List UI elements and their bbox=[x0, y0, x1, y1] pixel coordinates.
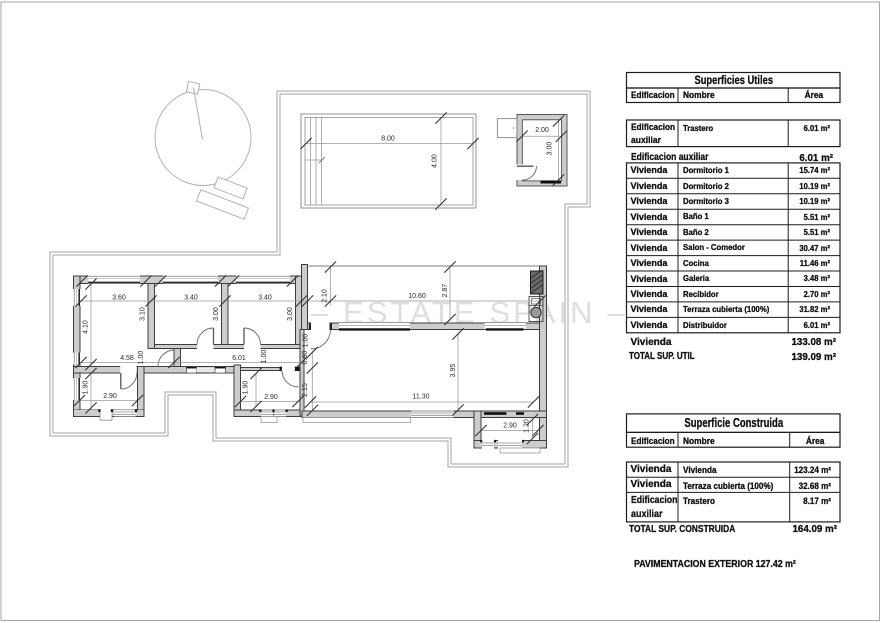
svg-text:3.40: 3.40 bbox=[258, 294, 272, 301]
svg-text:1.90: 1.90 bbox=[83, 381, 90, 395]
svg-text:3.00: 3.00 bbox=[213, 307, 220, 321]
svg-text:2.15: 2.15 bbox=[302, 383, 309, 397]
svg-text:1.00: 1.00 bbox=[303, 334, 310, 348]
svg-text:3.40: 3.40 bbox=[184, 294, 198, 301]
svg-text:2.90: 2.90 bbox=[503, 423, 517, 430]
svg-text:2.00: 2.00 bbox=[535, 127, 549, 134]
svg-text:2.90: 2.90 bbox=[103, 393, 117, 400]
svg-text:2.87: 2.87 bbox=[442, 284, 449, 298]
svg-text:6.01: 6.01 bbox=[232, 355, 246, 362]
svg-text:2.10: 2.10 bbox=[322, 289, 329, 303]
svg-text:4.10: 4.10 bbox=[83, 320, 90, 334]
svg-text:2.90: 2.90 bbox=[264, 394, 278, 401]
svg-text:3.00: 3.00 bbox=[547, 142, 554, 156]
svg-text:3.00: 3.00 bbox=[287, 307, 294, 321]
svg-text:3.95: 3.95 bbox=[450, 364, 457, 378]
svg-text:1.00: 1.00 bbox=[138, 351, 145, 365]
svg-text:4.58: 4.58 bbox=[120, 355, 134, 362]
svg-text:4.00: 4.00 bbox=[432, 154, 439, 168]
svg-text:1.20: 1.20 bbox=[524, 419, 531, 433]
svg-text:0.80: 0.80 bbox=[302, 351, 309, 365]
svg-text:3.10: 3.10 bbox=[140, 307, 147, 321]
svg-text:8.00: 8.00 bbox=[381, 136, 395, 143]
svg-text:3.60: 3.60 bbox=[112, 294, 126, 301]
svg-text:11.30: 11.30 bbox=[413, 394, 430, 401]
svg-text:10.60: 10.60 bbox=[408, 293, 426, 300]
svg-text:1.90: 1.90 bbox=[243, 381, 250, 395]
svg-text:1.00: 1.00 bbox=[261, 350, 268, 364]
